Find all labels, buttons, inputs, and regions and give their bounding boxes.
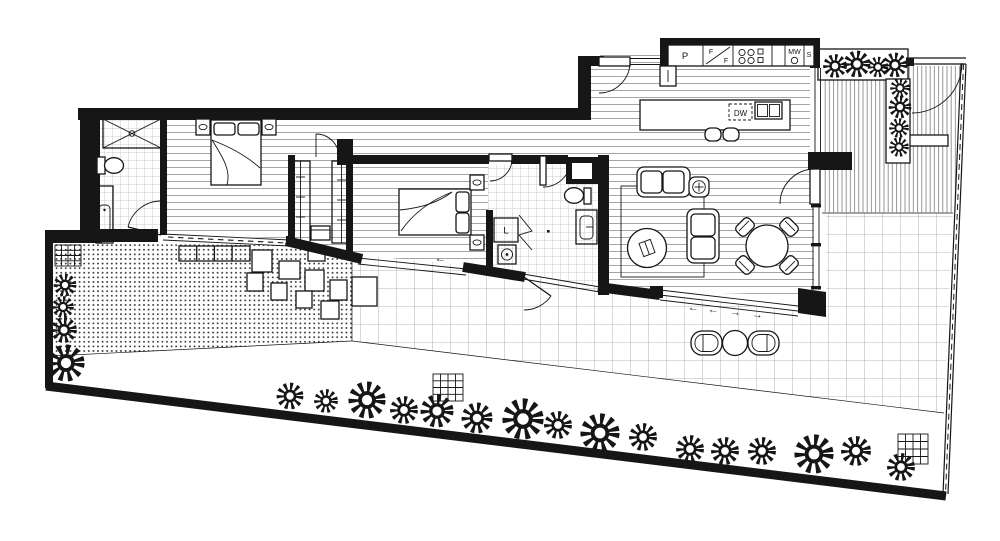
laundry-label: L <box>503 226 508 237</box>
lounge-chair-icon <box>748 331 779 355</box>
dining-table-icon <box>746 225 788 267</box>
sofa-icon <box>637 167 690 197</box>
flower-icon <box>281 387 299 405</box>
flower-icon <box>318 393 334 409</box>
shower-duct <box>566 157 598 184</box>
flower-icon <box>395 401 414 420</box>
flower-icon <box>587 420 614 447</box>
bar-stool-icon <box>723 128 739 141</box>
flower-icon <box>846 441 866 461</box>
fridge-label-bottom: F <box>724 58 728 65</box>
bar-stool-icon <box>705 128 721 141</box>
nightstand-icon <box>262 119 276 135</box>
flower-icon <box>509 405 537 433</box>
flower-icon <box>801 441 828 468</box>
queen-bed-icon <box>399 189 471 235</box>
sink-label: S <box>807 52 812 59</box>
window-slide-arrow: ← <box>434 252 446 265</box>
outdoor-lounge-set <box>691 331 779 356</box>
coffee-table-icon <box>628 229 667 268</box>
lounge-chair-icon <box>691 331 722 355</box>
nightstand-icon <box>196 119 210 135</box>
toilet-icon <box>565 188 592 204</box>
slide-arrow-icon: ← <box>687 301 699 314</box>
nightstand-icon <box>470 235 484 250</box>
fridge-label-top: F <box>709 49 713 56</box>
slide-arrow-icon: → <box>751 308 763 321</box>
floor-plan-svg: ← ← ← → → <box>0 0 1000 541</box>
flower-icon <box>426 400 448 422</box>
flower-icon <box>467 408 488 429</box>
nightstand-icon <box>470 175 484 190</box>
dishwasher-label: DW <box>734 109 748 118</box>
side-table-icon <box>689 177 709 197</box>
flower-icon <box>716 442 735 461</box>
flower-icon <box>753 442 772 461</box>
queen-bed-icon <box>211 120 261 185</box>
flower-icon <box>634 428 653 447</box>
floor-plan-page: ← ← ← → → <box>0 0 1000 541</box>
sofa-icon <box>687 209 719 263</box>
flower-icon <box>892 458 911 477</box>
outdoor-table-icon <box>723 331 748 356</box>
flower-icon <box>681 440 700 459</box>
slide-arrow-icon: ← <box>707 303 719 316</box>
toilet-icon <box>97 157 124 174</box>
pantry-label: P <box>682 51 688 62</box>
flower-icon <box>354 387 379 412</box>
microwave-label: MW <box>788 49 801 56</box>
ensuite-floor <box>100 120 160 233</box>
bench-icon <box>311 226 330 240</box>
slide-arrow-icon: → <box>729 306 741 319</box>
flower-icon <box>549 416 568 435</box>
